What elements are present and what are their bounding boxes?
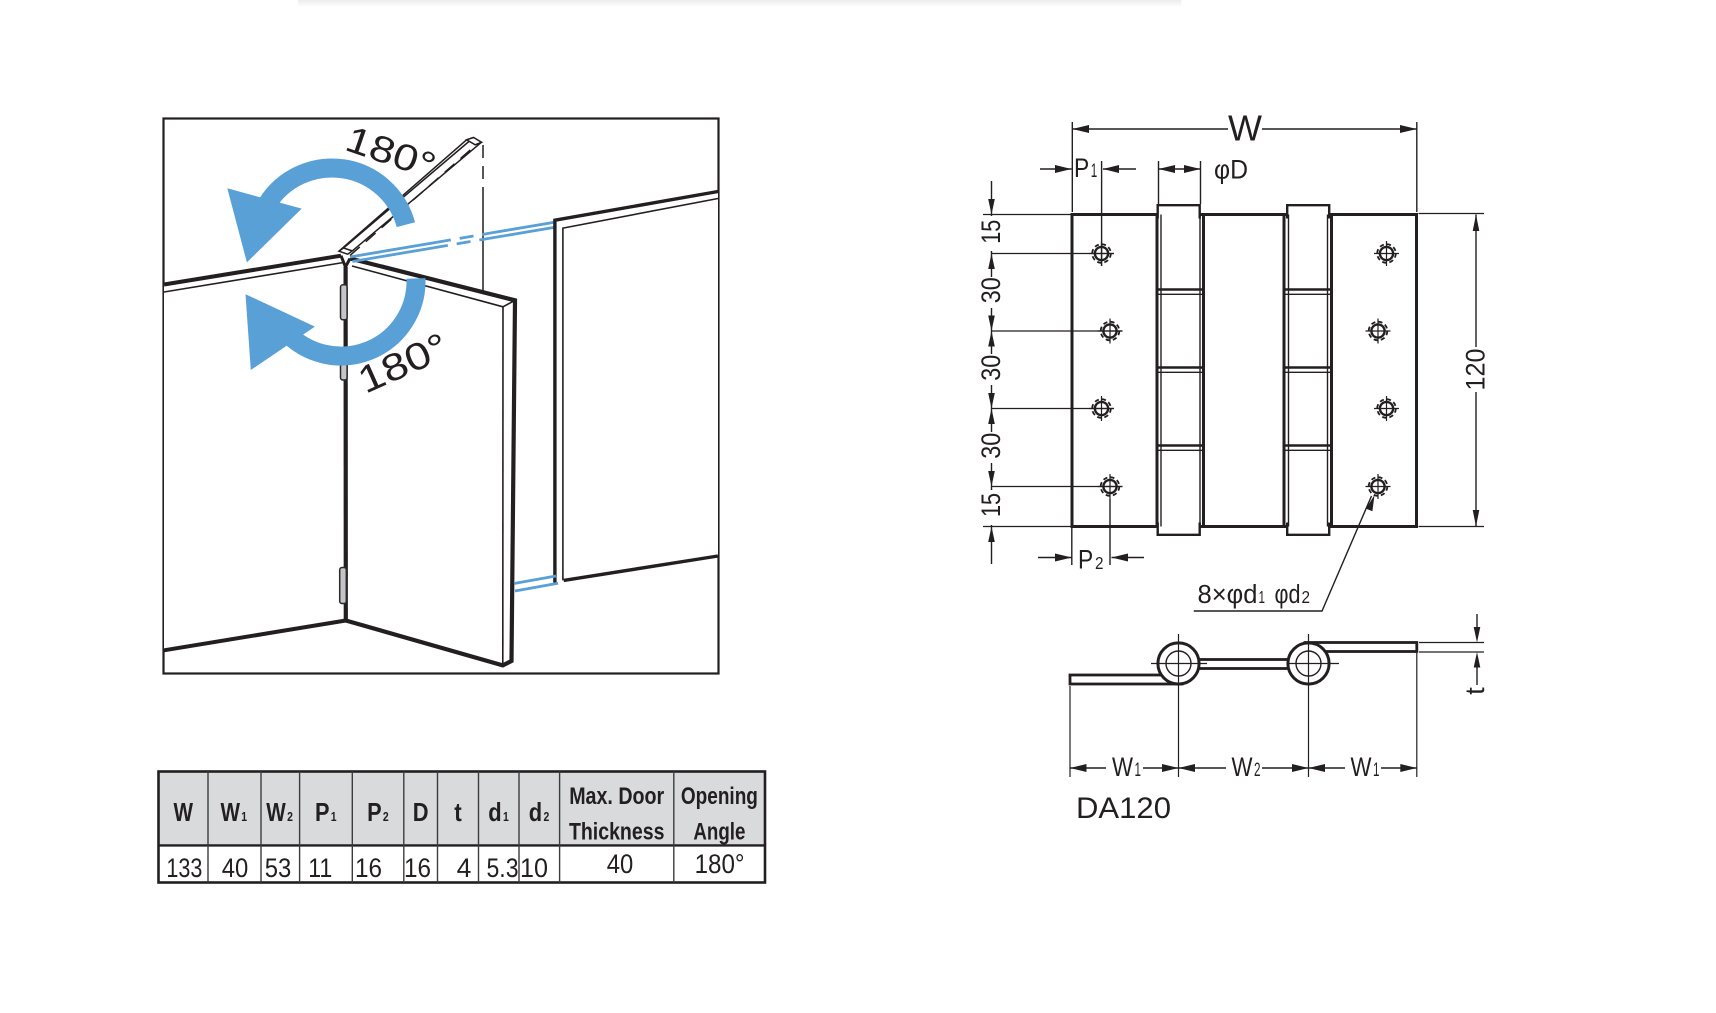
svg-text:5.3: 5.3 <box>487 853 519 883</box>
svg-text:2: 2 <box>1302 587 1311 607</box>
svg-text:1: 1 <box>241 809 247 824</box>
svg-text:W: W <box>266 797 286 827</box>
svg-text:φd: φd <box>1275 581 1301 609</box>
svg-text:P: P <box>1074 153 1089 183</box>
svg-text:Thickness: Thickness <box>569 819 665 846</box>
svg-text:d: d <box>529 797 542 827</box>
svg-text:2: 2 <box>544 809 550 824</box>
svg-text:DA120: DA120 <box>1076 792 1171 825</box>
svg-text:30: 30 <box>976 433 1006 459</box>
svg-text:Opening: Opening <box>681 783 758 810</box>
svg-text:30: 30 <box>976 277 1006 303</box>
svg-text:16: 16 <box>404 853 431 883</box>
svg-text:1: 1 <box>1373 760 1380 781</box>
svg-text:2: 2 <box>287 809 293 824</box>
svg-text:1: 1 <box>1259 587 1266 607</box>
svg-text:D: D <box>413 797 429 827</box>
svg-text:W: W <box>174 797 194 827</box>
svg-text:16: 16 <box>355 853 382 883</box>
svg-text:4: 4 <box>457 853 472 883</box>
svg-text:P: P <box>1078 544 1093 574</box>
svg-text:W: W <box>221 797 241 827</box>
svg-text:Angle: Angle <box>693 819 745 846</box>
svg-text:2: 2 <box>1254 760 1261 781</box>
svg-text:133: 133 <box>166 853 202 883</box>
svg-text:t: t <box>454 797 462 827</box>
svg-text:15: 15 <box>976 493 1006 517</box>
svg-text:1: 1 <box>1135 760 1142 781</box>
svg-text:15: 15 <box>976 220 1006 244</box>
svg-text:P: P <box>315 797 330 827</box>
svg-text:10: 10 <box>520 853 548 883</box>
svg-text:Max. Door: Max. Door <box>569 783 664 810</box>
svg-text:d: d <box>488 797 501 827</box>
svg-text:t: t <box>1460 687 1490 695</box>
svg-text:53: 53 <box>265 853 292 883</box>
svg-text:W: W <box>1232 752 1253 782</box>
svg-text:P: P <box>367 797 382 827</box>
svg-text:W: W <box>1228 108 1262 149</box>
svg-text:2: 2 <box>1095 553 1104 573</box>
svg-text:2: 2 <box>383 809 389 824</box>
svg-text:180°: 180° <box>695 849 745 879</box>
svg-text:W: W <box>1351 752 1372 782</box>
svg-text:11: 11 <box>308 853 332 883</box>
svg-text:1: 1 <box>331 809 337 824</box>
svg-text:40: 40 <box>607 849 634 879</box>
svg-text:1: 1 <box>1091 161 1098 182</box>
svg-text:1: 1 <box>503 809 509 824</box>
svg-text:30: 30 <box>976 355 1006 381</box>
svg-text:40: 40 <box>222 853 249 883</box>
svg-text:W: W <box>1112 752 1133 782</box>
svg-text:φD: φD <box>1214 154 1248 184</box>
svg-text:8×φd: 8×φd <box>1198 581 1258 609</box>
svg-text:120: 120 <box>1461 349 1491 391</box>
